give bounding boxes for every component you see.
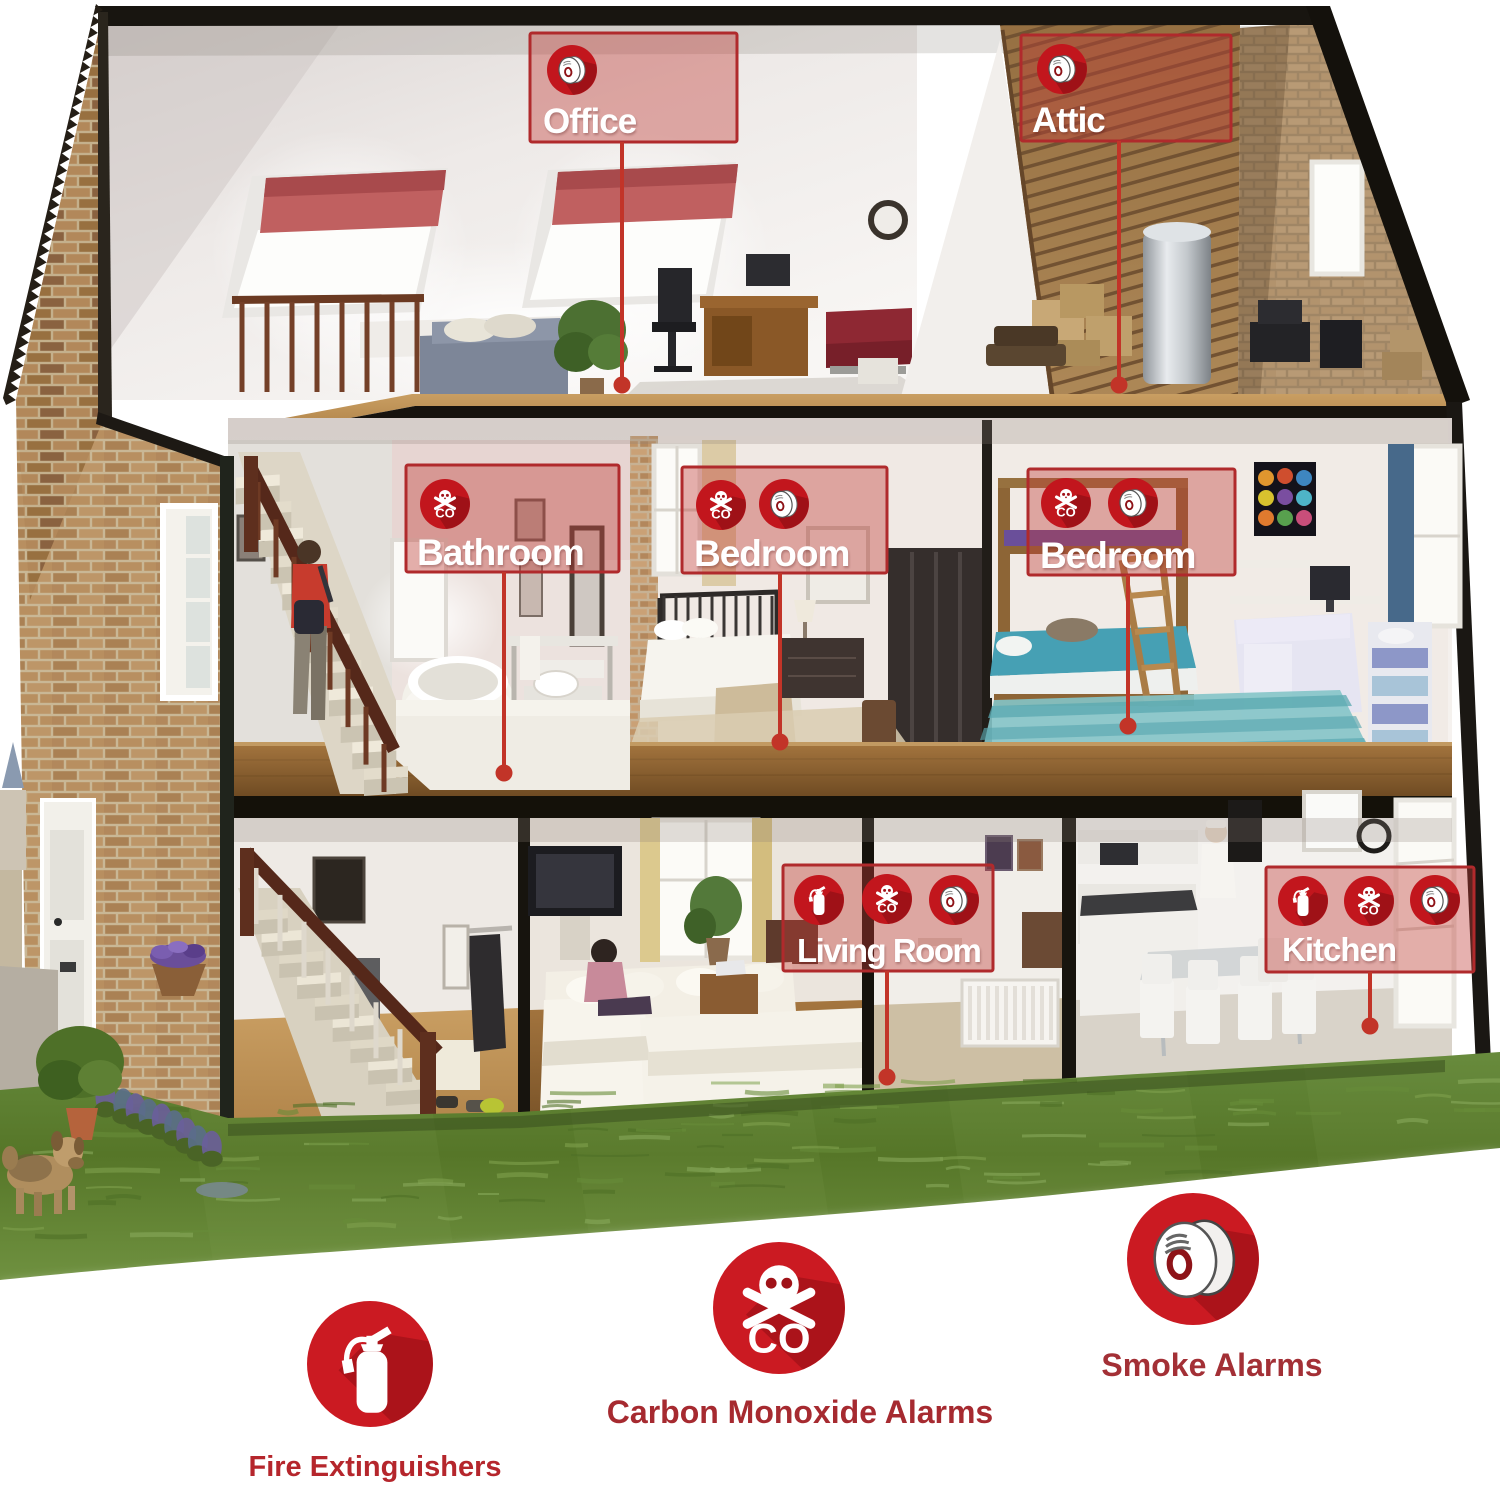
svg-text:Fire Extinguishers: Fire Extinguishers <box>248 1451 501 1483</box>
svg-text:Attic: Attic <box>1032 101 1105 140</box>
svg-text:Bathroom: Bathroom <box>417 532 584 573</box>
svg-text:Carbon Monoxide Alarms: Carbon Monoxide Alarms <box>607 1394 993 1430</box>
svg-text:CO: CO <box>1056 505 1076 520</box>
svg-text:CO: CO <box>711 507 731 522</box>
svg-text:Smoke Alarms: Smoke Alarms <box>1101 1347 1322 1383</box>
svg-text:CO: CO <box>1359 903 1379 918</box>
svg-text:CO: CO <box>877 901 897 916</box>
svg-text:Office: Office <box>543 102 637 141</box>
svg-text:CO: CO <box>435 506 455 521</box>
svg-text:Kitchen: Kitchen <box>1282 931 1396 968</box>
svg-text:Bedroom: Bedroom <box>1040 535 1195 576</box>
svg-text:Bedroom: Bedroom <box>694 533 849 574</box>
svg-text:Living Room: Living Room <box>797 932 980 969</box>
svg-text:CO: CO <box>748 1315 811 1362</box>
